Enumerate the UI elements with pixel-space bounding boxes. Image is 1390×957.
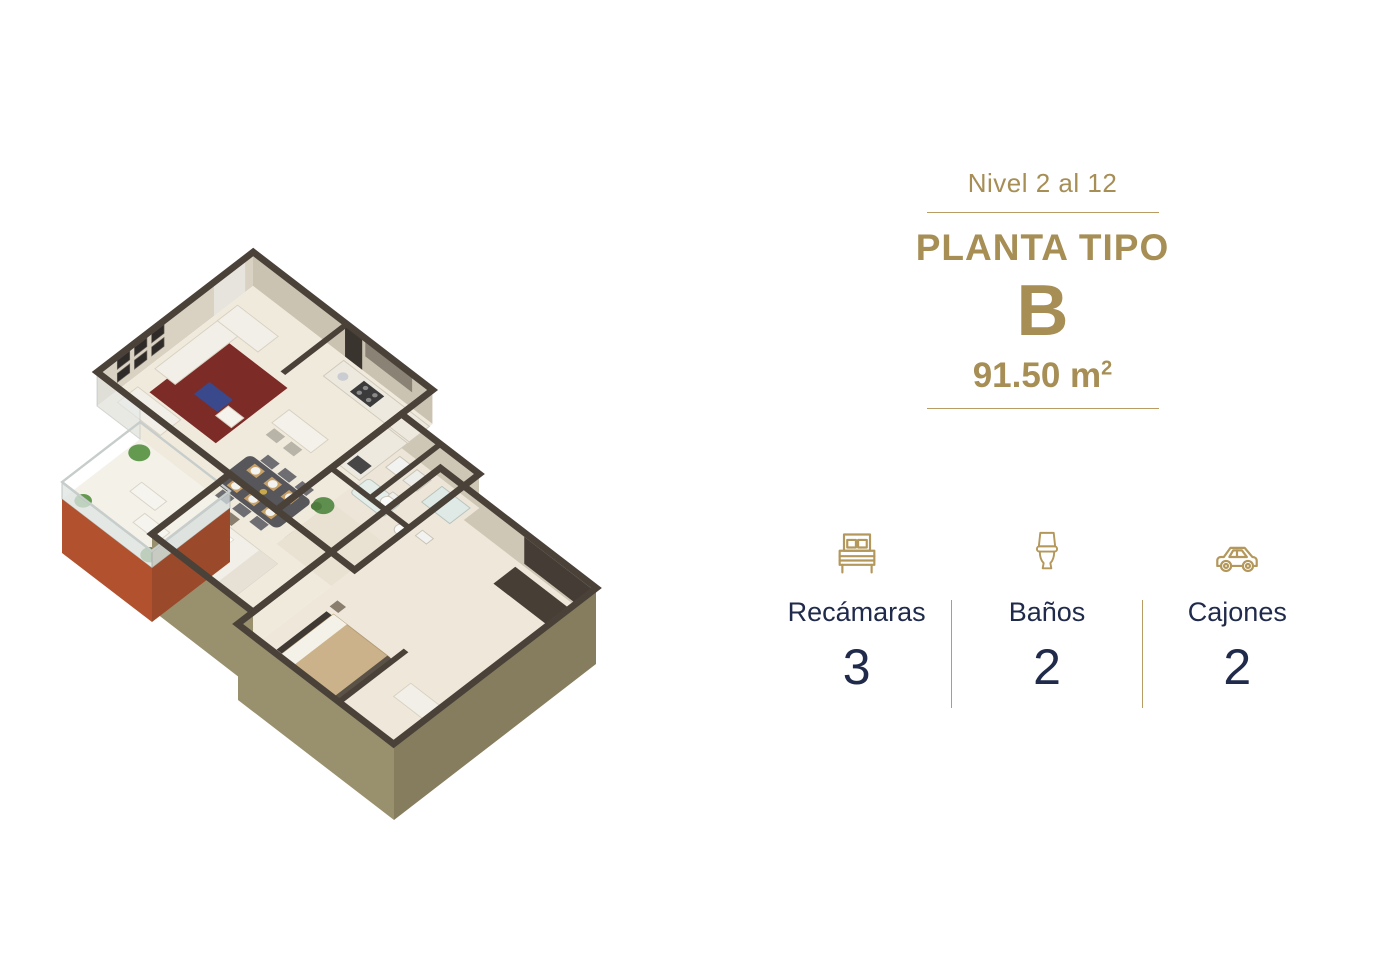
car-icon [1210, 528, 1264, 578]
stat-label: Recámaras [788, 598, 926, 628]
stat-value: 2 [1033, 640, 1061, 695]
level-label: Nivel 2 al 12 [850, 168, 1235, 199]
stat-bedrooms: Recámaras 3 [762, 520, 951, 715]
stat-label: Cajones [1188, 598, 1287, 628]
floor-plan-3d [60, 225, 660, 835]
plan-area: 91.50 m2 [850, 357, 1235, 396]
toilet-icon [1024, 528, 1070, 578]
plan-letter: B [850, 275, 1235, 347]
area-superscript: 2 [1101, 357, 1112, 379]
plan-type-label: PLANTA TIPO [850, 228, 1235, 269]
plan-info-panel: Nivel 2 al 12 PLANTA TIPO B 91.50 m2 [850, 168, 1235, 409]
stat-label: Baños [1009, 598, 1086, 628]
gold-divider-bottom [927, 408, 1159, 409]
unit-stats: Recámaras 3 Baños 2 [762, 520, 1332, 715]
stat-value: 3 [843, 640, 871, 695]
gold-divider-top [927, 212, 1159, 213]
floor-plan-svg [60, 225, 660, 835]
stat-parking: Cajones 2 [1143, 520, 1332, 715]
bed-icon [831, 528, 883, 578]
area-value: 91.50 m [973, 356, 1101, 395]
stat-bathrooms: Baños 2 [952, 520, 1141, 715]
stat-value: 2 [1223, 640, 1251, 695]
